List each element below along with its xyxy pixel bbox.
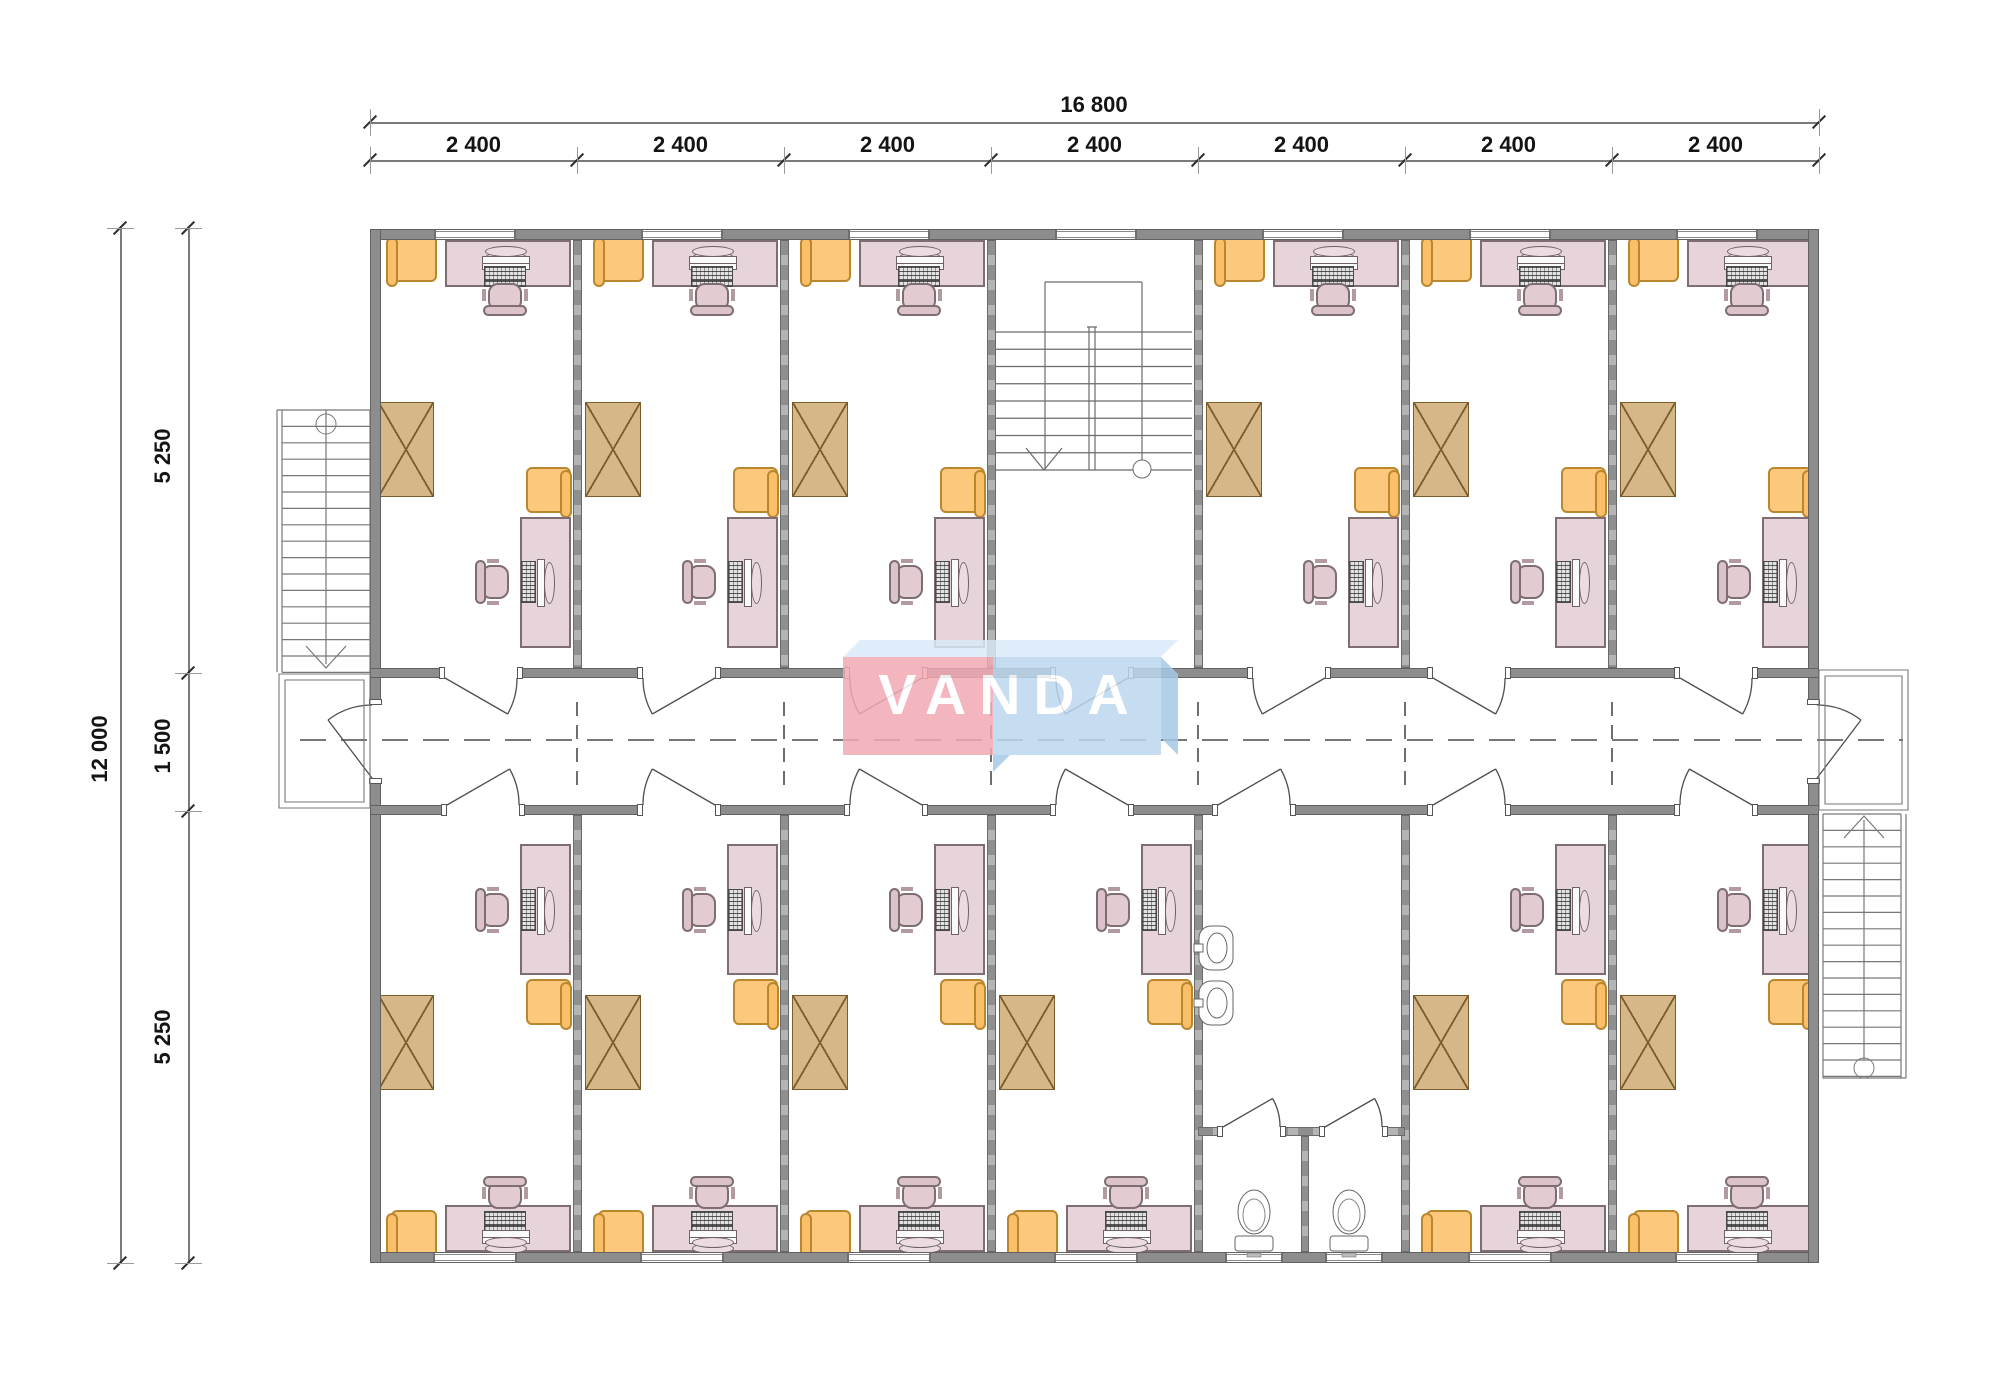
chair-armrest (1766, 289, 1770, 301)
armchair-back (800, 237, 812, 287)
cabinet-back (974, 982, 986, 1030)
armchair-back (1214, 237, 1226, 287)
door-jamb (1807, 778, 1820, 784)
logo-top-face (841, 640, 1179, 657)
door-opening (1680, 805, 1752, 815)
exterior-wall-left (370, 229, 381, 705)
partition-wall (1401, 815, 1410, 1252)
door-jamb (1807, 699, 1820, 705)
computer-keyboard (484, 1211, 526, 1226)
dim-line-top-total (370, 122, 1819, 124)
computer-keyboard (1105, 1211, 1147, 1226)
dim-extension (175, 228, 202, 229)
wardrobe (585, 402, 641, 497)
dim-left-segment: 5 250 (150, 977, 176, 1097)
door-jamb (1325, 667, 1331, 679)
chair-armrest (731, 1187, 735, 1199)
cabinet-back (767, 470, 779, 518)
chair-armrest (487, 601, 499, 605)
window (848, 230, 930, 239)
chair-armrest (1108, 887, 1120, 891)
door-jamb (637, 667, 643, 679)
computer-screen (689, 256, 737, 264)
chair-armrest (901, 929, 913, 933)
dim-extension (1612, 147, 1613, 174)
door-jamb (1212, 804, 1218, 816)
computer-monitor (1579, 562, 1590, 604)
door-jamb (1319, 1126, 1325, 1137)
computer-monitor (1372, 562, 1383, 604)
chair-armrest (1103, 1187, 1107, 1199)
dim-extension (107, 1263, 134, 1264)
door-jamb (439, 667, 445, 679)
door-jamb (1752, 667, 1758, 679)
cabinet-back (974, 470, 986, 518)
computer-keyboard (1519, 1211, 1561, 1226)
door-opening (1253, 668, 1325, 678)
computer-keyboard (1556, 889, 1571, 931)
partition-wall (573, 815, 582, 1252)
partition-wall (780, 240, 789, 668)
computer-monitor (1165, 890, 1176, 932)
cabinet-back (1595, 982, 1607, 1030)
computer-monitor (751, 562, 762, 604)
cabinet-back (560, 982, 572, 1030)
wardrobe (1620, 995, 1676, 1090)
door-opening (643, 668, 715, 678)
armchair-back (1421, 237, 1433, 287)
wc-window (1325, 1253, 1383, 1262)
dim-extension (1405, 147, 1406, 174)
computer-monitor (751, 890, 762, 932)
chair-armrest (1729, 929, 1741, 933)
computer-keyboard (691, 1211, 733, 1226)
chair-armrest (1315, 601, 1327, 605)
office-chair-back (1725, 305, 1769, 316)
wc-window (1225, 1253, 1283, 1262)
dim-top-segment: 2 400 (370, 132, 577, 158)
cabinet-back (1595, 470, 1607, 518)
door-opening (1218, 805, 1290, 815)
wardrobe (1620, 402, 1676, 497)
door-jamb (1128, 804, 1134, 816)
office-chair-back (1096, 888, 1107, 932)
dim-line-left-total (120, 228, 122, 1263)
dim-extension (1819, 147, 1820, 174)
window (434, 230, 516, 239)
chair-armrest (1517, 289, 1521, 301)
door-jamb (1752, 804, 1758, 816)
door-opening (445, 668, 517, 678)
chair-armrest (938, 1187, 942, 1199)
wardrobe (585, 995, 641, 1090)
computer-keyboard (1142, 889, 1157, 931)
armchair-back (386, 237, 398, 287)
wardrobe (792, 995, 848, 1090)
office-chair-back (483, 1176, 527, 1187)
chair-armrest (694, 887, 706, 891)
computer-screen (1517, 256, 1565, 264)
partition-wall (1608, 240, 1617, 668)
dim-left-segment: 1 500 (150, 686, 176, 806)
office-chair-back (1717, 560, 1728, 604)
wardrobe (792, 402, 848, 497)
partition-wall (987, 240, 996, 668)
chair-armrest (1729, 601, 1741, 605)
window (1054, 1253, 1138, 1262)
dim-top-segment: 2 400 (991, 132, 1198, 158)
toilet (1330, 1190, 1368, 1257)
door-jamb (715, 804, 721, 816)
door-jamb (1050, 804, 1056, 816)
door-jamb (1280, 1126, 1286, 1137)
office-chair-back (889, 560, 900, 604)
window (1675, 1253, 1759, 1262)
wardrobe (1413, 402, 1469, 497)
partition-wall (1194, 240, 1203, 668)
chair-armrest (689, 1187, 693, 1199)
chair-armrest (1522, 559, 1534, 563)
chair-armrest (1108, 929, 1120, 933)
computer-monitor (899, 1237, 941, 1248)
office-chair-back (690, 1176, 734, 1187)
computer-screen (1310, 256, 1358, 264)
chair-armrest (1724, 289, 1728, 301)
computer-keyboard (691, 266, 733, 281)
computer-keyboard (935, 889, 950, 931)
dim-extension (175, 811, 202, 812)
computer-keyboard (898, 1211, 940, 1226)
chair-armrest (694, 559, 706, 563)
office-chair-back (475, 560, 486, 604)
chair-armrest (487, 929, 499, 933)
chair-armrest (689, 289, 693, 301)
dim-extension (370, 109, 371, 136)
door-jamb (1505, 667, 1511, 679)
office-chair-back (690, 305, 734, 316)
wardrobe (378, 402, 434, 497)
computer-keyboard (484, 266, 526, 281)
computer-keyboard (728, 889, 743, 931)
window (1676, 230, 1758, 239)
door-jamb (1217, 1126, 1223, 1137)
dim-top-segment: 2 400 (1405, 132, 1612, 158)
office-chair-back (1518, 305, 1562, 316)
office-chair-back (897, 305, 941, 316)
chair-armrest (487, 559, 499, 563)
door-jamb (1674, 804, 1680, 816)
toilet (1235, 1190, 1273, 1257)
chair-armrest (1522, 601, 1534, 605)
door-opening (1223, 1127, 1280, 1136)
chair-armrest (901, 887, 913, 891)
dim-top-segment: 2 400 (1198, 132, 1405, 158)
computer-monitor (958, 890, 969, 932)
chair-armrest (1559, 289, 1563, 301)
chair-armrest (1352, 289, 1356, 301)
office-chair-back (1725, 1176, 1769, 1187)
dim-extension (107, 228, 134, 229)
dim-top-segment: 2 400 (577, 132, 784, 158)
window (433, 1253, 517, 1262)
wardrobe (999, 995, 1055, 1090)
partition-wall (987, 815, 996, 1252)
computer-monitor (1520, 1237, 1562, 1248)
chair-armrest (1145, 1187, 1149, 1199)
chair-armrest (524, 289, 528, 301)
dim-top-segment: 2 400 (1612, 132, 1819, 158)
door-jamb (519, 804, 525, 816)
computer-monitor (544, 890, 555, 932)
chair-armrest (1517, 1187, 1521, 1199)
computer-monitor (692, 1237, 734, 1248)
cabinet-back (560, 470, 572, 518)
chair-armrest (896, 1187, 900, 1199)
computer-monitor (1579, 890, 1590, 932)
chair-armrest (938, 289, 942, 301)
partition-wall (1608, 815, 1617, 1252)
exterior-wall-right (1808, 778, 1819, 1263)
dim-top-total: 16 800 (994, 92, 1194, 118)
computer-keyboard (728, 561, 743, 603)
door-opening (1056, 805, 1128, 815)
computer-screen (1724, 256, 1772, 264)
office-chair-back (897, 1176, 941, 1187)
dim-top-segment: 2 400 (784, 132, 991, 158)
wardrobe (1413, 995, 1469, 1090)
computer-keyboard (1312, 266, 1354, 281)
vanda-logo: VANDA (841, 640, 1179, 782)
exterior-wall-right (1808, 229, 1819, 705)
dim-extension (370, 147, 371, 174)
chair-armrest (901, 601, 913, 605)
door-opening (370, 705, 381, 778)
wardrobe (1206, 402, 1262, 497)
door-jamb (1290, 804, 1296, 816)
armchair-back (593, 237, 605, 287)
office-chair-back (1717, 888, 1728, 932)
dim-extension (1198, 147, 1199, 174)
computer-keyboard (521, 561, 536, 603)
door-jamb (637, 804, 643, 816)
dim-extension (175, 673, 202, 674)
dim-line-top-segments (370, 160, 1819, 162)
wc-stall-divider (1301, 1136, 1309, 1252)
door-jamb (1382, 1126, 1388, 1137)
computer-screen (896, 256, 944, 264)
door-jamb (922, 804, 928, 816)
chair-armrest (694, 601, 706, 605)
door-opening (850, 805, 922, 815)
computer-monitor (544, 562, 555, 604)
partition-wall (1401, 240, 1410, 668)
computer-monitor (1106, 1237, 1148, 1248)
chair-armrest (1315, 559, 1327, 563)
armchair-back (1628, 237, 1640, 287)
office-chair-back (682, 560, 693, 604)
computer-keyboard (1349, 561, 1364, 603)
office-chair-back (1104, 1176, 1148, 1187)
door-jamb (1674, 667, 1680, 679)
office-chair-back (1303, 560, 1314, 604)
window (1469, 230, 1551, 239)
door-opening (1325, 1127, 1382, 1136)
chair-armrest (1522, 929, 1534, 933)
computer-keyboard (898, 266, 940, 281)
door-jamb (1505, 804, 1511, 816)
chair-armrest (1766, 1187, 1770, 1199)
computer-monitor (958, 562, 969, 604)
door-jamb (441, 804, 447, 816)
door-opening (1433, 805, 1505, 815)
office-chair-back (1510, 888, 1521, 932)
door-jamb (715, 667, 721, 679)
chair-armrest (1310, 289, 1314, 301)
chair-armrest (524, 1187, 528, 1199)
window (847, 1253, 931, 1262)
cabinet-back (1388, 470, 1400, 518)
dim-line-left-segments (188, 228, 190, 1263)
office-chair-back (889, 888, 900, 932)
chair-armrest (731, 289, 735, 301)
dim-extension (175, 1263, 202, 1264)
logo-corner-flap (993, 755, 1010, 772)
computer-monitor (1727, 1237, 1769, 1248)
partition-wall (573, 240, 582, 668)
dim-left-total: 12 000 (87, 689, 113, 809)
window (1055, 230, 1137, 239)
door-jamb (1247, 667, 1253, 679)
computer-keyboard (1763, 561, 1778, 603)
computer-keyboard (1726, 1211, 1768, 1226)
chair-armrest (1729, 559, 1741, 563)
door-jamb (369, 778, 382, 784)
dim-extension (991, 147, 992, 174)
chair-armrest (1729, 887, 1741, 891)
dim-extension (577, 147, 578, 174)
door-opening (1808, 705, 1819, 778)
computer-monitor (485, 1237, 527, 1248)
wardrobe (378, 995, 434, 1090)
partition-wall (1194, 815, 1203, 1252)
office-chair-back (1510, 560, 1521, 604)
chair-armrest (896, 289, 900, 301)
door-jamb (844, 804, 850, 816)
logo-text: VANDA (849, 662, 1171, 728)
office-chair-back (682, 888, 693, 932)
dim-extension (1819, 109, 1820, 136)
chair-armrest (694, 929, 706, 933)
computer-keyboard (1556, 561, 1571, 603)
exterior-wall-left (370, 778, 381, 1263)
window (1262, 230, 1344, 239)
chair-armrest (1559, 1187, 1563, 1199)
computer-keyboard (1519, 266, 1561, 281)
computer-screen (482, 256, 530, 264)
door-opening (1680, 668, 1752, 678)
door-jamb (517, 667, 523, 679)
office-chair-back (475, 888, 486, 932)
door-opening (1433, 668, 1505, 678)
door-jamb (1427, 667, 1433, 679)
chair-armrest (1724, 1187, 1728, 1199)
door-opening (643, 805, 715, 815)
dim-left-segment: 5 250 (150, 396, 176, 516)
computer-keyboard (1763, 889, 1778, 931)
computer-monitor (1786, 562, 1797, 604)
partition-wall (780, 815, 789, 1252)
door-opening (447, 805, 519, 815)
cabinet-back (1181, 982, 1193, 1030)
window (641, 230, 723, 239)
office-chair-back (483, 305, 527, 316)
chair-armrest (482, 289, 486, 301)
window (640, 1253, 724, 1262)
dim-extension (784, 147, 785, 174)
computer-keyboard (521, 889, 536, 931)
chair-armrest (1522, 887, 1534, 891)
office-chair-back (1518, 1176, 1562, 1187)
door-jamb (369, 699, 382, 705)
chair-armrest (482, 1187, 486, 1199)
chair-armrest (487, 887, 499, 891)
computer-keyboard (935, 561, 950, 603)
computer-monitor (1786, 890, 1797, 932)
door-jamb (1427, 804, 1433, 816)
computer-keyboard (1726, 266, 1768, 281)
chair-armrest (901, 559, 913, 563)
window (1468, 1253, 1552, 1262)
cabinet-back (767, 982, 779, 1030)
floor-plan-canvas: 16 800 2 400 2 400 2 400 2 400 2 400 2 4… (0, 0, 2000, 1380)
office-chair-back (1311, 305, 1355, 316)
